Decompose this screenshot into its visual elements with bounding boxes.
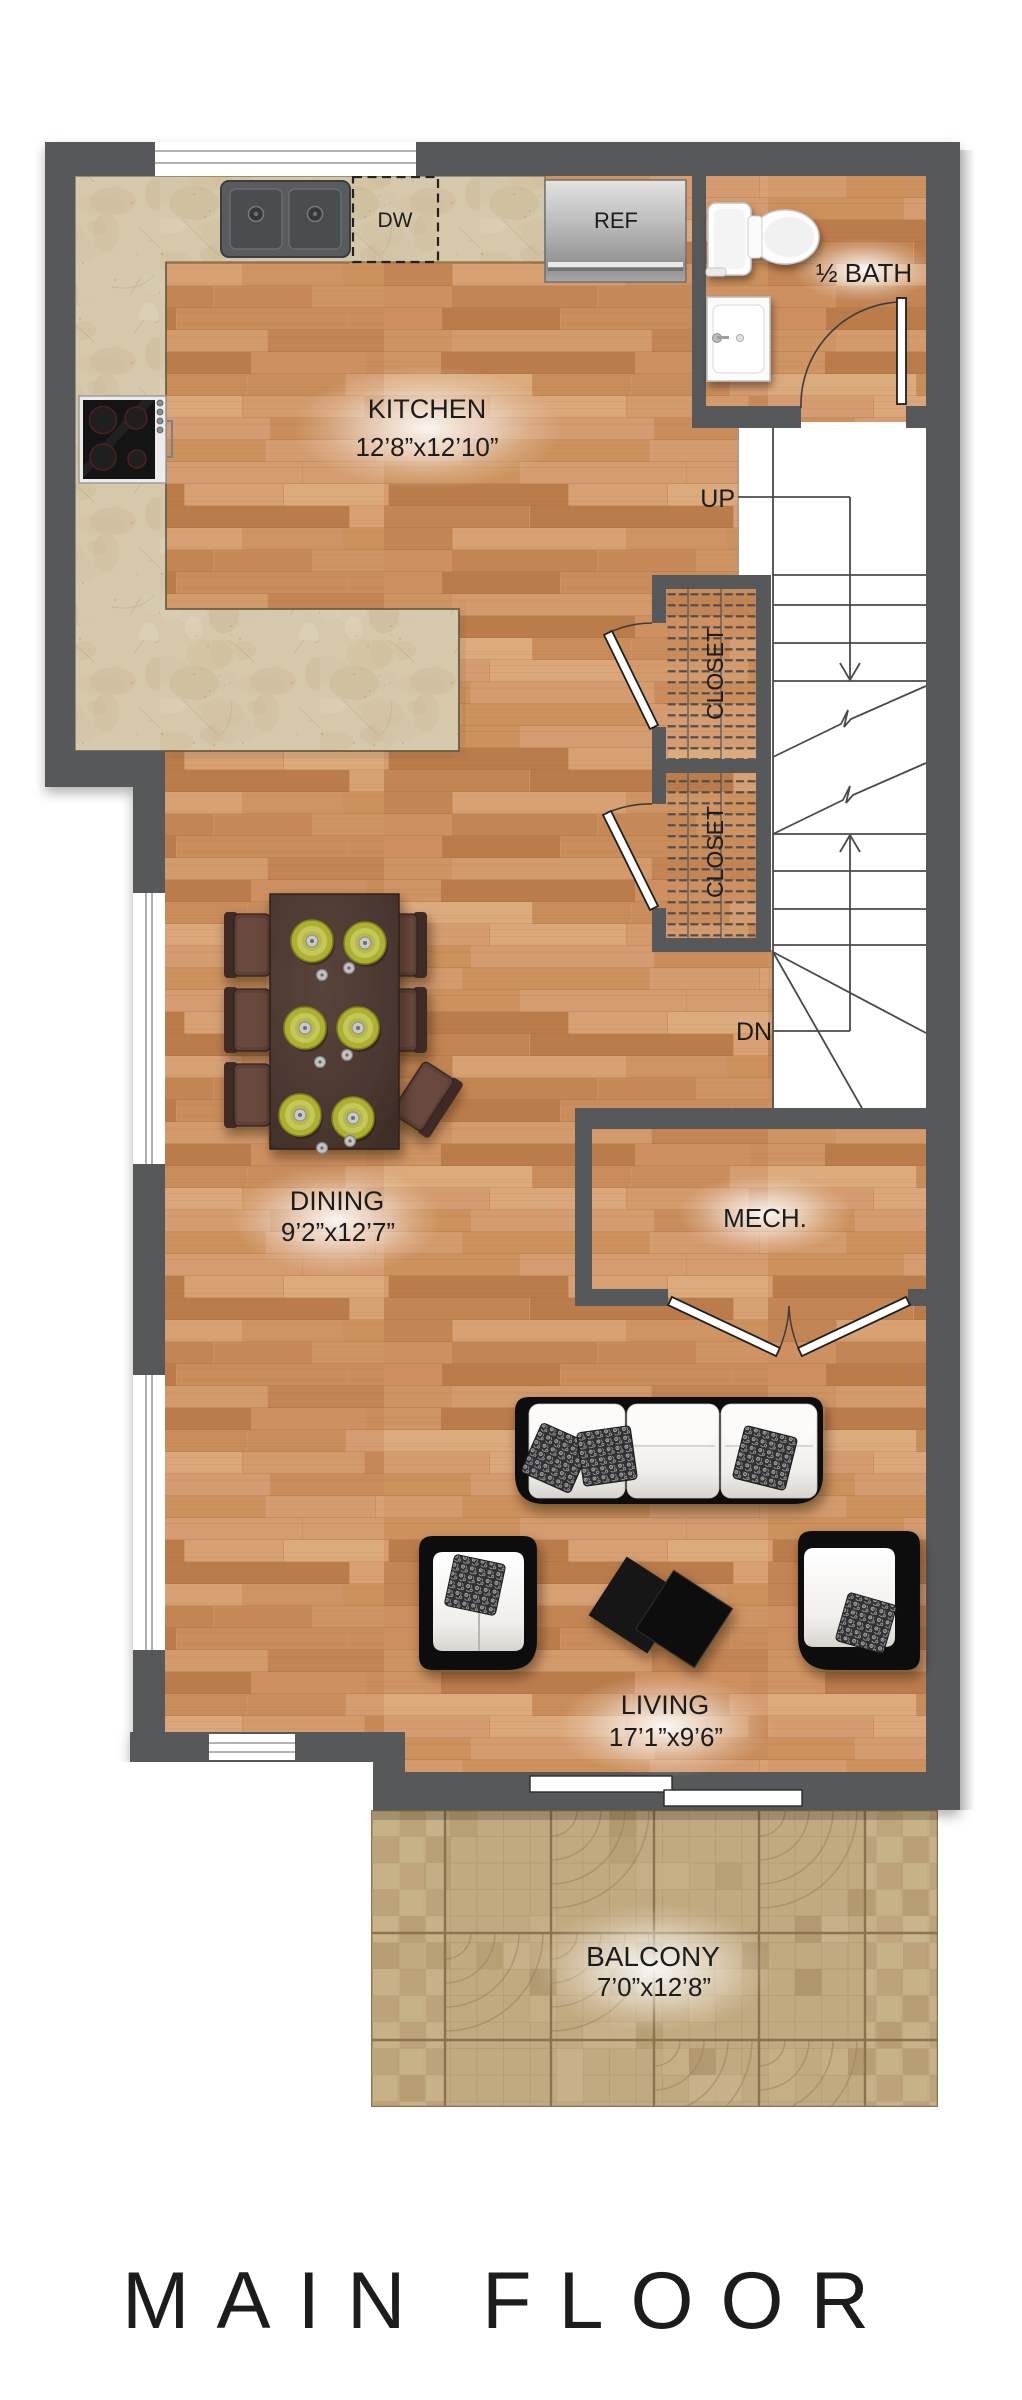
svg-text:17’1”x9’6”: 17’1”x9’6” (609, 1722, 723, 1752)
svg-text:½ BATH: ½ BATH (816, 258, 912, 288)
svg-text:CLOSET: CLOSET (702, 806, 728, 898)
svg-text:12’8”x12’10”: 12’8”x12’10” (355, 432, 498, 462)
svg-text:DINING: DINING (290, 1186, 385, 1216)
svg-text:DN: DN (736, 1018, 772, 1046)
svg-text:DW: DW (378, 209, 413, 232)
svg-text:KITCHEN: KITCHEN (368, 394, 487, 424)
svg-text:7’0”x12’8”: 7’0”x12’8” (597, 1972, 711, 2002)
svg-text:LIVING: LIVING (621, 1690, 710, 1720)
svg-text:UP: UP (700, 485, 735, 513)
svg-text:MECH.: MECH. (723, 1203, 807, 1233)
svg-text:CLOSET: CLOSET (702, 628, 728, 720)
svg-text:MAIN FLOOR: MAIN FLOOR (122, 2256, 896, 2346)
svg-text:BALCONY: BALCONY (586, 1941, 720, 1972)
svg-text:REF: REF (594, 208, 638, 233)
svg-text:9’2”x12’7”: 9’2”x12’7” (281, 1217, 395, 1247)
